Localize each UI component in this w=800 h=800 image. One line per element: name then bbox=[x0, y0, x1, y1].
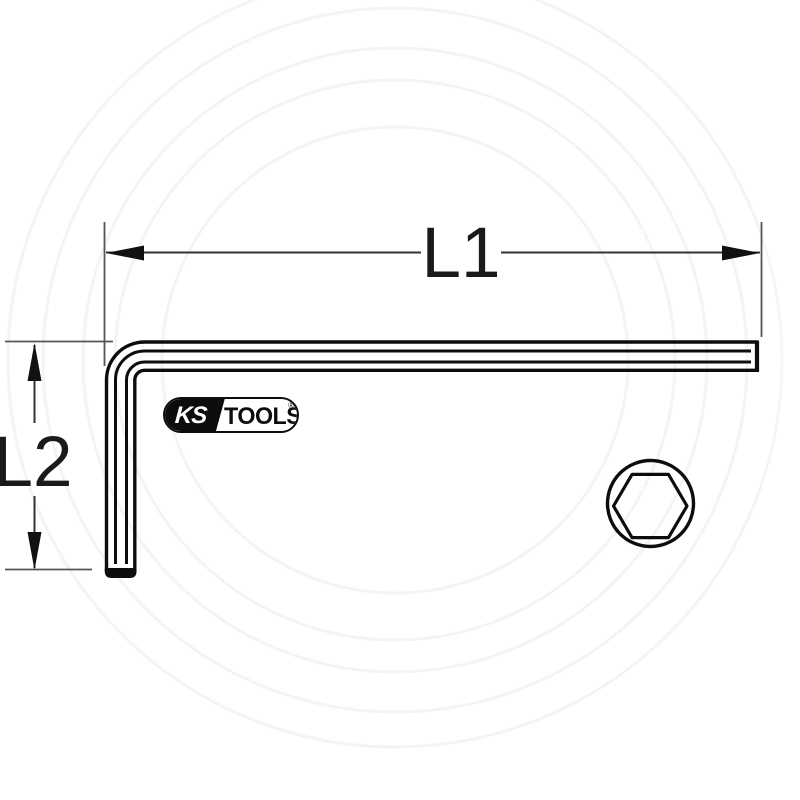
arrowhead-l2-down bbox=[28, 532, 42, 570]
dimension-label-l1: L1 bbox=[399, 218, 523, 289]
watermark-circles bbox=[8, 0, 782, 747]
registered-trademark-icon: ® bbox=[288, 401, 294, 410]
hex-key-diagram bbox=[0, 0, 800, 800]
technical-drawing-page: L1 L2 KS TOOLS ® bbox=[0, 0, 800, 800]
cross-section-hexagon bbox=[614, 474, 688, 537]
ks-tools-logo: KS TOOLS ® bbox=[163, 397, 299, 433]
hex-key-short-arm-tip bbox=[105, 568, 137, 578]
arrowhead-l2-up bbox=[28, 343, 42, 381]
arrowhead-l1-left bbox=[106, 246, 144, 261]
cross-section-symbol bbox=[608, 461, 694, 547]
dimension-label-l2: L2 bbox=[0, 427, 96, 498]
logo-ks-text: KS bbox=[174, 402, 207, 430]
hex-key-facet-line-2 bbox=[127, 362, 752, 564]
arrowhead-l1-right bbox=[722, 246, 760, 261]
